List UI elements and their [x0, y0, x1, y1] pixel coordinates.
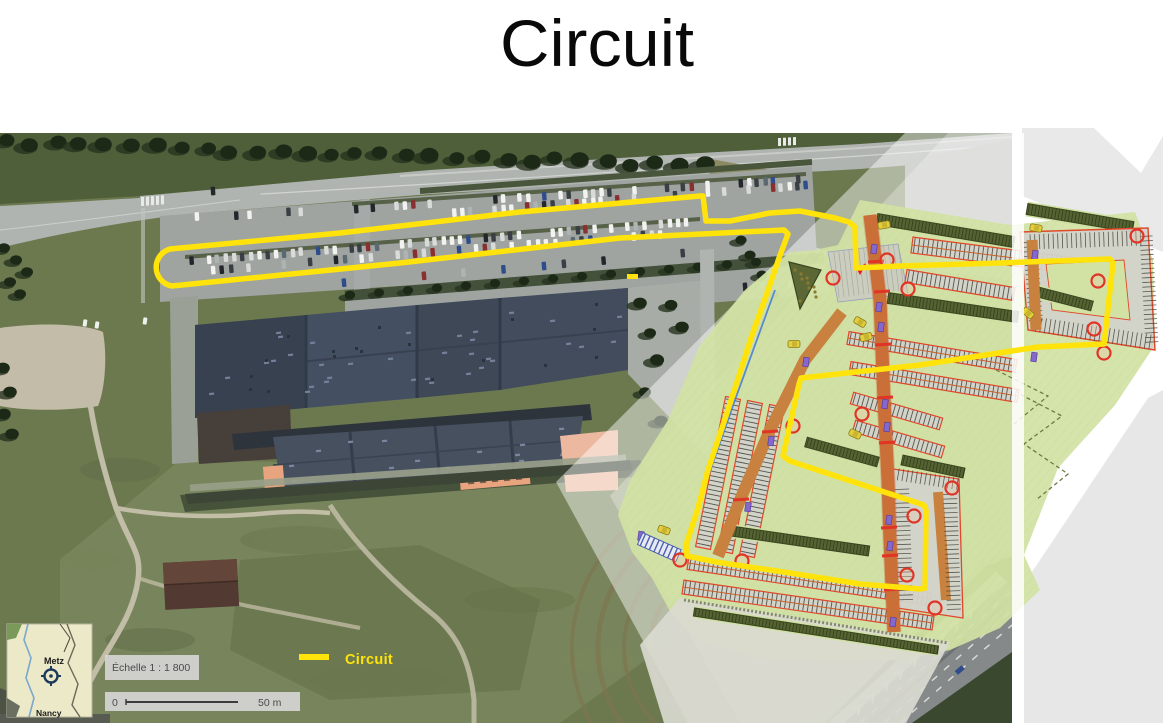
svg-text:50 m: 50 m [258, 697, 282, 709]
svg-text:Échelle 1 : 1 800: Échelle 1 : 1 800 [112, 661, 190, 674]
svg-text:Circuit: Circuit [345, 652, 393, 668]
svg-text:Nancy: Nancy [36, 708, 62, 718]
svg-text:Metz: Metz [44, 656, 64, 666]
svg-text:Circuit: Circuit [500, 6, 694, 80]
svg-text:0: 0 [112, 697, 118, 709]
